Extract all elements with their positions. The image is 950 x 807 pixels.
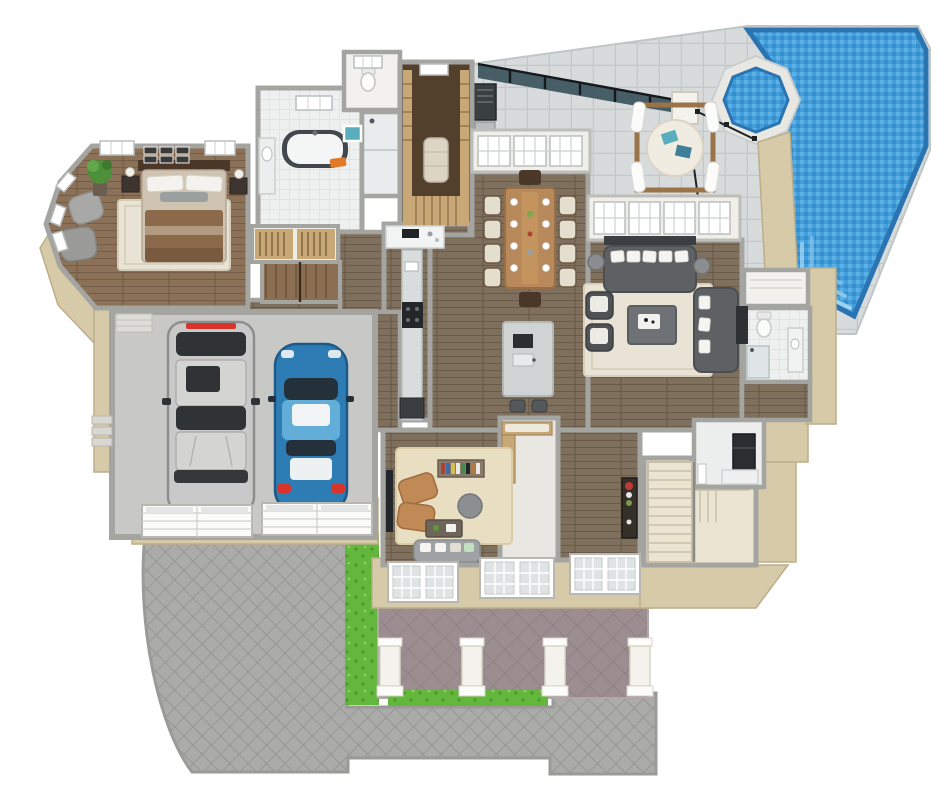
porch-column (459, 638, 485, 696)
wall-tv (386, 470, 393, 532)
foyer (622, 478, 637, 538)
sofa-second (694, 288, 738, 372)
bath-vanity (259, 138, 275, 194)
pool-bath-vanity (788, 328, 803, 372)
garage-door (142, 505, 252, 537)
garage-side-steps (92, 416, 112, 446)
great-room-window-band-b (588, 196, 740, 240)
host-chair (519, 292, 541, 307)
pool-bath-hall-floor (742, 378, 810, 420)
toilet (757, 319, 771, 337)
garage-door (262, 503, 372, 535)
fridge (400, 398, 424, 418)
shower-room-floor (362, 112, 400, 196)
round-pouf (458, 494, 482, 518)
french-door-set (388, 562, 458, 602)
teal-wall-art (344, 126, 361, 141)
terrace-divider-wall (758, 132, 798, 290)
bar-stool (510, 400, 525, 412)
porch-column (542, 638, 568, 696)
bed (138, 160, 230, 262)
host-chair (519, 170, 541, 185)
closet-ottoman (424, 138, 448, 182)
sofa-main (604, 246, 696, 292)
porch-column (377, 638, 403, 696)
kitchen-island (503, 322, 553, 396)
blue-sports-car (268, 344, 354, 512)
bookcase (438, 460, 484, 477)
french-door-set (480, 558, 554, 598)
garage-corridor-floor (375, 312, 400, 430)
perimeter-counter (402, 250, 422, 420)
lamp (235, 170, 244, 179)
range (402, 302, 423, 328)
bar-stool (532, 400, 547, 412)
great-room-window-band-a (472, 130, 590, 172)
porch-doors (388, 554, 640, 602)
spa (712, 56, 800, 144)
lamp (126, 168, 135, 177)
floor-plan-render (0, 0, 950, 807)
laundry-counter (722, 470, 758, 484)
coffee-table (628, 306, 676, 344)
media-console (604, 236, 696, 245)
freestanding-tub (282, 130, 348, 168)
den-coffee-table (426, 520, 462, 537)
side-cabinet (736, 306, 748, 344)
den (386, 448, 512, 562)
closet-window (420, 64, 448, 75)
den-sofa (414, 540, 480, 562)
porch-column (627, 638, 653, 696)
silver-suv (162, 322, 260, 512)
toilet (361, 68, 375, 91)
black-appliance (733, 434, 755, 474)
porch-slab (378, 602, 648, 698)
french-door-set (570, 554, 640, 594)
floor-plan-stage (0, 0, 950, 807)
